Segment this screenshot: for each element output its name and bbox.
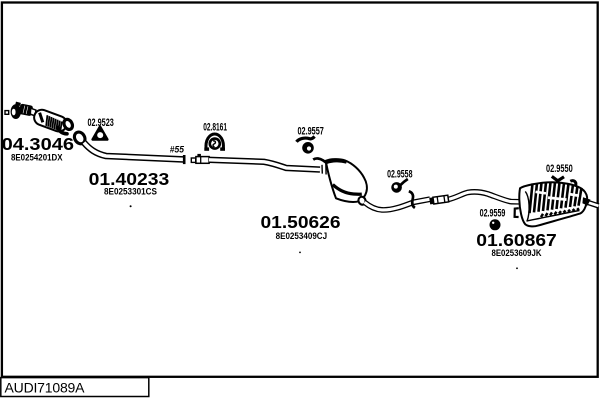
svg-text:02.9550: 02.9550 [546, 163, 573, 175]
svg-text:02.9558: 02.9558 [387, 168, 412, 180]
svg-text:8E0254201DX: 8E0254201DX [11, 153, 63, 164]
svg-text:AUDI71089A: AUDI71089A [5, 380, 86, 396]
svg-text:01.50626: 01.50626 [261, 212, 341, 232]
svg-text:02.8161: 02.8161 [203, 121, 227, 133]
svg-text:02.9559: 02.9559 [480, 207, 506, 219]
svg-text:8E0253409CJ: 8E0253409CJ [276, 231, 328, 242]
svg-text:8E0253301CS: 8E0253301CS [104, 186, 158, 197]
svg-text:01.60867: 01.60867 [476, 230, 557, 250]
svg-text:04.3046: 04.3046 [2, 134, 75, 154]
svg-text:#55: #55 [170, 143, 185, 154]
svg-text:8E0253609JK: 8E0253609JK [492, 248, 542, 259]
svg-text:02.9557: 02.9557 [298, 126, 324, 138]
